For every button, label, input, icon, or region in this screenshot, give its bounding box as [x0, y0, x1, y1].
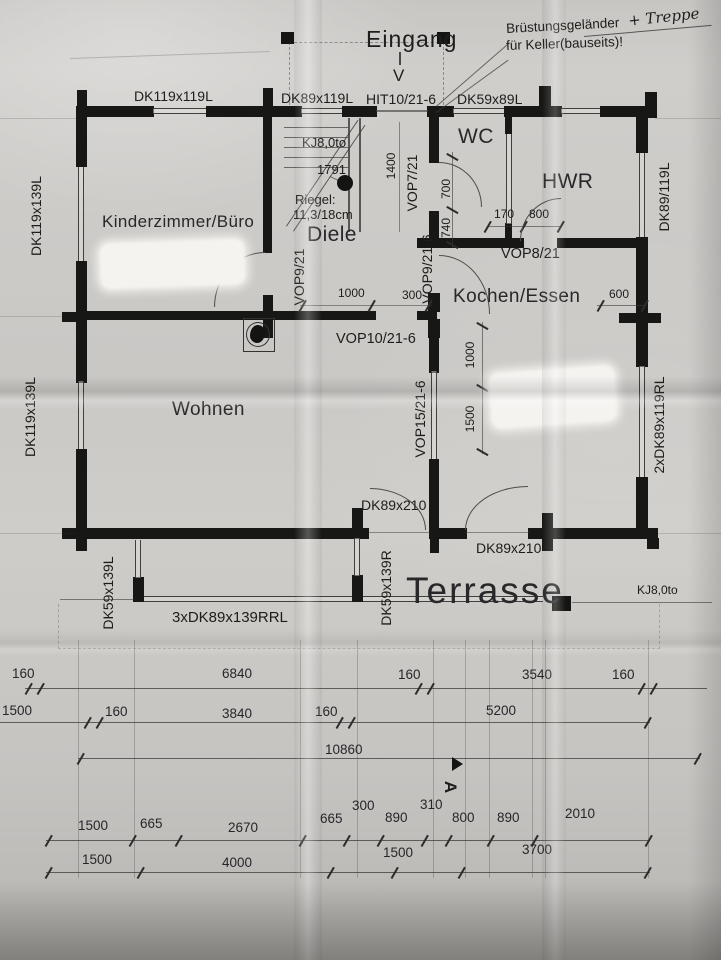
room-label-hwr: HWR [542, 170, 593, 194]
section-marker-label: A [440, 781, 460, 793]
window-label-dk59x139l: DK59x139L [100, 556, 116, 629]
window-symbol [301, 108, 342, 114]
dim-row1-0: 160 [12, 666, 35, 681]
dim-row4-5: 890 [385, 810, 408, 825]
chimney-symbol [243, 318, 275, 352]
dimension-line [0, 316, 62, 317]
inner-dim-800: 800 [529, 207, 549, 221]
window-symbol [144, 596, 352, 602]
window-label-terrace-front: 3xDK89x139RRL [172, 609, 288, 626]
window-label-vop9-6: VOP9/21-6 [419, 234, 435, 303]
inner-dim-600: 600 [609, 287, 629, 301]
dimension-line [284, 127, 348, 128]
room-label-wc: WC [458, 125, 494, 149]
roof-overhang-dashed [58, 604, 660, 649]
dim-row5-2: 1500 [383, 845, 413, 860]
dim-row2-2: 3840 [222, 706, 252, 721]
wall-segment [206, 106, 302, 117]
dimension-line [376, 110, 428, 112]
dimension-line [78, 758, 700, 759]
window-label-dk59x139r: DK59x139R [378, 550, 394, 626]
extension-line [465, 640, 466, 878]
wall-segment [263, 117, 272, 253]
door-swing-arc [465, 486, 528, 530]
wall-segment [429, 319, 439, 373]
door-label-dk89x210-a: DK89x210 [361, 497, 426, 513]
window-label-top-0: DK119x119L [134, 88, 213, 104]
dimension-line [572, 602, 712, 603]
wall-segment [76, 528, 369, 539]
dim-row5-0: 1500 [82, 852, 112, 867]
plan-geometry [0, 0, 721, 960]
entrance-label: Eingang [366, 26, 457, 53]
extension-line [357, 640, 358, 878]
room-label-diele: Diele [307, 223, 357, 247]
wall-segment [78, 106, 154, 117]
dimension-line [655, 118, 721, 119]
window-label-vop9: VOP9/21 [291, 249, 307, 306]
inner-dim-700: 700 [439, 179, 453, 199]
window-label-vop15: VOP15/21-6 [412, 380, 428, 457]
dimension-line [465, 532, 530, 533]
dim-row1-3: 3540 [522, 667, 552, 682]
window-label-left-1: DK119x139L [22, 377, 38, 457]
wall-segment [647, 538, 659, 549]
section-arrow-icon [452, 757, 463, 771]
stair-post-symbol [337, 175, 353, 191]
inner-dim-1000-v: 1000 [463, 342, 477, 369]
room-label-kinderzimmer: Kinderzimmer/Büro [102, 212, 254, 232]
dim-row4-6: 310 [420, 797, 443, 812]
room-label-terrasse: Terrasse [406, 570, 564, 612]
dimension-line [60, 599, 134, 600]
dim-row4-3: 665 [320, 811, 343, 826]
dim-row4-1: 665 [140, 816, 163, 831]
wall-segment [557, 238, 637, 248]
window-symbol [453, 108, 504, 114]
dimension-line [46, 872, 650, 873]
inner-dim-740: 740 [439, 218, 453, 238]
window-symbol [78, 381, 84, 449]
wall-segment [505, 117, 512, 134]
roof-label-right: KJ8,0to [637, 583, 678, 597]
wall-segment [636, 110, 648, 153]
dimension-line [658, 533, 721, 534]
window-symbol [354, 538, 360, 576]
wall-segment [542, 513, 553, 529]
entrance-arrow: V [393, 66, 404, 86]
dim-row4-0: 1500 [78, 818, 108, 833]
window-label-right-0: DK89/119L [656, 162, 672, 231]
extension-line [433, 640, 434, 878]
dim-row3-0: 10860 [325, 742, 363, 757]
window-label-top-3: DK59x89L [457, 91, 522, 107]
dim-row4-7: 800 [452, 810, 475, 825]
window-symbol [78, 167, 84, 261]
wall-segment [430, 538, 439, 553]
wall-segment [133, 577, 144, 602]
riegel-note-line2: 11,3/18cm [293, 207, 353, 222]
whiteout-patch-left [99, 238, 246, 289]
wall-segment [352, 575, 363, 602]
floor-plan-photo: Eingang V Brüstungsgeländer + Treppe für… [0, 0, 721, 960]
window-label-left-0: DK119x139L [28, 176, 44, 256]
dim-row1-4: 160 [612, 667, 635, 682]
dim-row4-8: 890 [497, 810, 520, 825]
wall-segment [619, 313, 637, 323]
dimension-line [597, 305, 646, 306]
wall-segment [76, 449, 87, 539]
extension-line [134, 640, 135, 878]
dimension-line [0, 533, 76, 534]
wall-segment [647, 313, 661, 323]
window-symbol [153, 108, 206, 114]
wall-segment [85, 311, 255, 320]
wall-segment [62, 312, 77, 322]
door-label-dk89x210-b: DK89x210 [476, 540, 541, 556]
window-symbol [639, 153, 645, 237]
riegel-note-line1: Riegel: [295, 192, 335, 207]
inner-dim-1400: 1400 [384, 153, 398, 180]
window-label-vop10: VOP10/21-6 [336, 331, 416, 347]
dim-row5-3: 3700 [522, 842, 552, 857]
dimension-line [284, 157, 348, 158]
dim-row4-2: 2670 [228, 820, 258, 835]
wall-segment [429, 117, 439, 163]
dimension-line [0, 118, 78, 119]
wall-segment [342, 106, 377, 117]
dimension-line [368, 532, 430, 533]
dim-row1-2: 160 [398, 667, 421, 682]
wall-segment [76, 106, 87, 167]
wall-segment [504, 106, 562, 117]
door-label-hit: HIT10/21-6 [366, 91, 436, 107]
wall-segment [263, 88, 273, 107]
window-label-right-1: 2xDK89x119RL [651, 376, 667, 473]
dim-row1-1: 6840 [222, 666, 252, 681]
dim-row4-9: 2010 [565, 806, 595, 821]
room-label-kochen: Kochen/Essen [453, 286, 580, 308]
dim-row5-1: 4000 [222, 855, 252, 870]
room-label-wohnen: Wohnen [172, 399, 245, 421]
stair-number: 1791 [317, 162, 346, 177]
window-label-vop8: VOP8/21 [501, 246, 560, 262]
dim-row4-4: 300 [352, 798, 375, 813]
dimension-line [300, 305, 432, 306]
wall-segment [77, 90, 87, 107]
dim-row2-0: 1500 [2, 703, 32, 718]
dim-row2-1: 160 [105, 704, 128, 719]
dim-row2-4: 5200 [486, 703, 516, 718]
wall-segment [76, 261, 87, 383]
dim-row2-3: 160 [315, 704, 338, 719]
wall-segment [429, 459, 439, 529]
wall-segment [76, 538, 87, 551]
window-symbol [431, 371, 437, 459]
extension-line [359, 118, 361, 232]
inner-dim-170: 170 [494, 207, 514, 221]
wall-segment [542, 538, 553, 551]
window-label-top-1: DK89x119L [281, 90, 353, 106]
extension-line [399, 122, 400, 232]
inner-dim-1000: 1000 [338, 286, 365, 300]
dimension-line [70, 51, 270, 59]
whiteout-patch-right [488, 365, 618, 430]
window-symbol [135, 540, 141, 578]
roof-label-left: KJ8,0to [302, 135, 346, 150]
window-label-vop7: VOP7/21 [404, 155, 420, 212]
inner-dim-1500-v: 1500 [463, 406, 477, 433]
dimension-line [46, 840, 650, 841]
wall-segment [539, 86, 551, 107]
window-symbol [639, 366, 645, 477]
window-symbol [561, 108, 600, 114]
dimension-line [25, 688, 707, 689]
